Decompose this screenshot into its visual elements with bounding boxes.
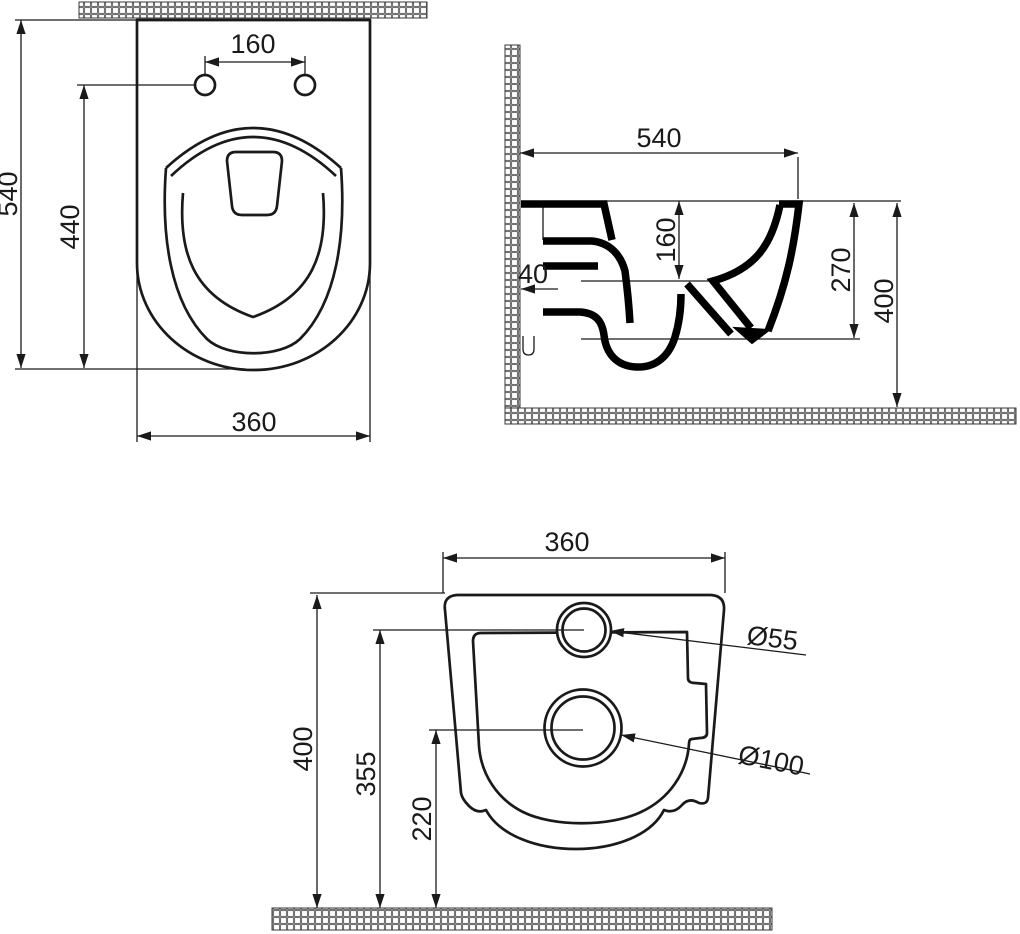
profile-outlet-spigot [735, 328, 769, 343]
mounting-hole-left [195, 75, 215, 95]
toilet-dimension-drawing: 160 540 440 360 540 160 40 270 [0, 0, 1020, 934]
dim-label-rear-width: 360 [544, 527, 589, 557]
profile-top-surface [521, 204, 612, 240]
dim-label-depth: 540 [636, 123, 681, 153]
dim-label-outlet-height: 270 [826, 247, 856, 292]
profile-bowl-inner [713, 205, 780, 328]
dim-label-outlet-diameter: Ø100 [736, 739, 807, 781]
dim-label-top-width: 360 [231, 407, 276, 437]
dim-label-top-overall-length: 540 [0, 171, 23, 216]
wall-hatch-side-view [505, 45, 520, 408]
dim-label-side-overall-height: 400 [869, 278, 899, 323]
dim-label-rear-overall-height: 400 [288, 726, 318, 771]
dim-label-hole-to-front: 440 [55, 204, 85, 249]
dim-label-rim-drop: 160 [651, 217, 681, 262]
dim-label-inlet-height: 355 [351, 751, 381, 796]
outlet-port-outer [545, 690, 622, 767]
floor-hatch-rear-view [272, 908, 772, 930]
drain-stub-outline [523, 336, 534, 355]
dim-label-hole-spacing: 160 [230, 29, 275, 59]
mounting-hole-right [295, 75, 315, 95]
side-view: 540 160 40 270 400 [505, 45, 1016, 424]
dim-label-wall-offset: 40 [518, 259, 548, 289]
profile-trap-underside [543, 294, 681, 367]
rear-view: 360 400 355 220 Ø55 Ø100 [272, 527, 810, 930]
floor-hatch-side-view [505, 408, 1016, 424]
dim-label-outlet-center-height: 220 [407, 796, 437, 841]
dim-label-inlet-diameter: Ø55 [745, 620, 799, 656]
technical-drawing-page: 160 540 440 360 540 160 40 270 [0, 0, 1020, 934]
wall-hatch-top-view [79, 2, 427, 18]
top-view: 160 540 440 360 [0, 2, 427, 442]
